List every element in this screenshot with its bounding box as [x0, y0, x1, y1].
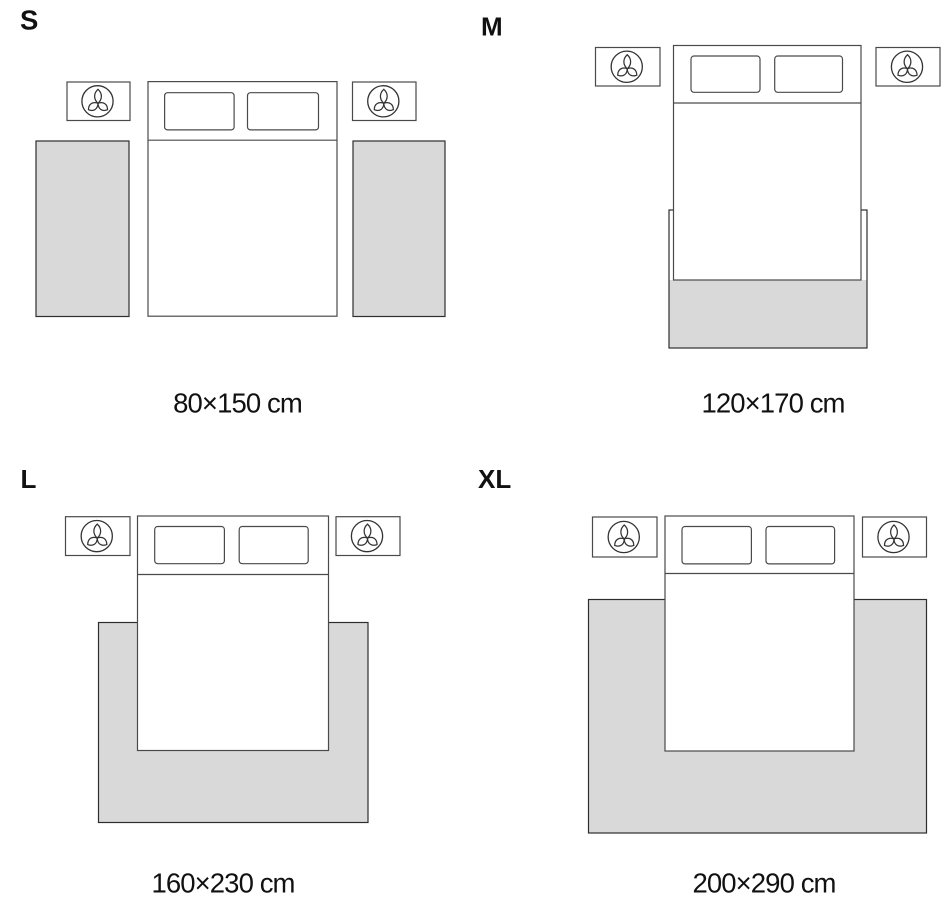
svg-text:L: L	[21, 464, 37, 494]
svg-text:M: M	[481, 11, 503, 41]
svg-text:200×290 cm: 200×290 cm	[692, 868, 835, 899]
svg-text:S: S	[20, 5, 38, 36]
svg-text:80×150 cm: 80×150 cm	[173, 388, 302, 419]
svg-text:120×170 cm: 120×170 cm	[701, 388, 844, 419]
svg-text:160×230 cm: 160×230 cm	[151, 868, 294, 899]
svg-text:XL: XL	[478, 464, 511, 494]
